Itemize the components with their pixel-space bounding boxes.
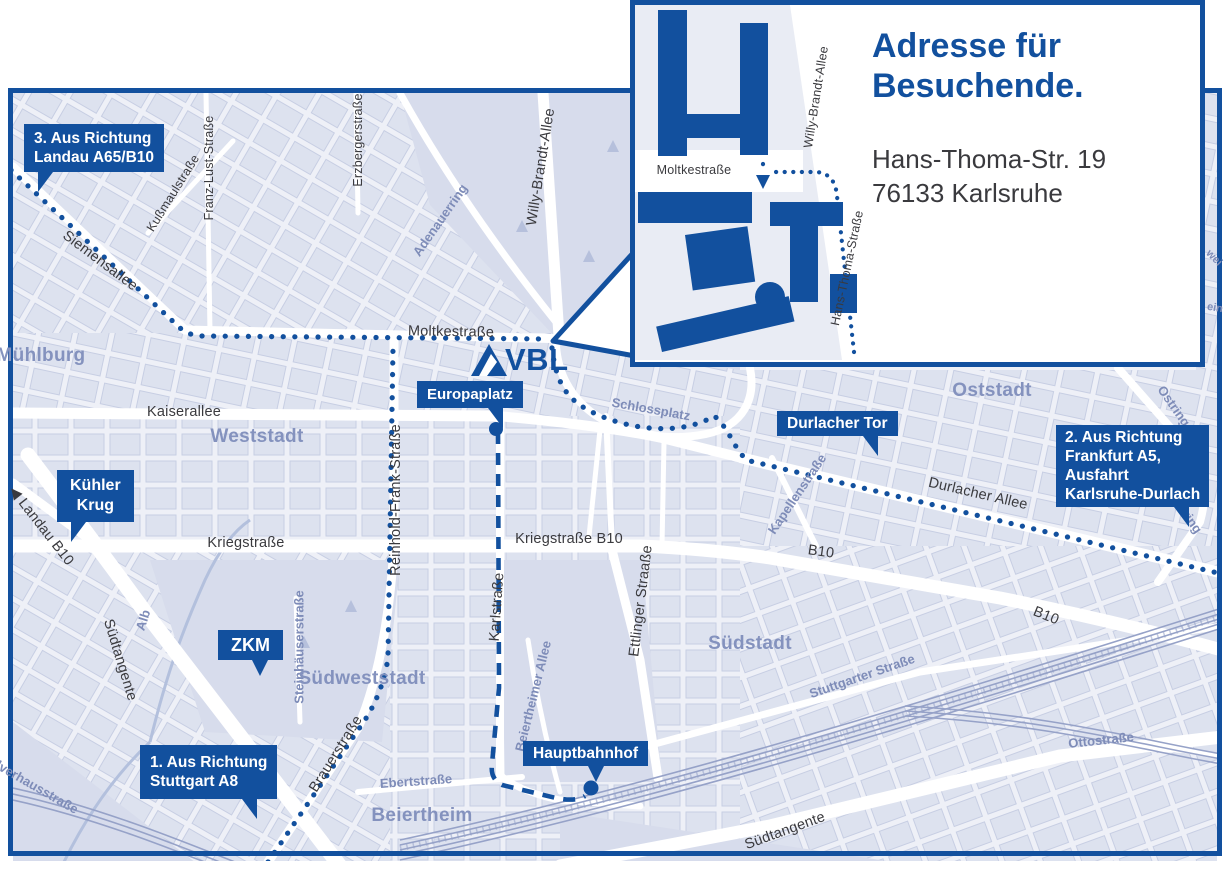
address-line2: 76133 Karlsruhe xyxy=(872,176,1106,210)
vbl-logo-text: VBL xyxy=(505,342,569,378)
callout-durlacher-tor: Durlacher Tor xyxy=(777,411,898,436)
callout-kuehler-krug: Kühler Krug xyxy=(57,470,134,522)
callout-route3-landau: 3. Aus Richtung Landau A65/B10 xyxy=(24,124,164,172)
callout-europaplatz: Europaplatz xyxy=(417,381,523,408)
inset-address: Hans-Thoma-Str. 19 76133 Karlsruhe xyxy=(872,142,1106,210)
callout-zkm: ZKM xyxy=(218,630,283,660)
callout-route2-frankfurt: 2. Aus Richtung Frankfurt A5, Ausfahrt K… xyxy=(1056,425,1209,507)
vbl-directions-map: Adresse für Besuchende. Hans-Thoma-Str. … xyxy=(0,0,1230,874)
inset-heading-line2: Besuchende. xyxy=(872,66,1084,106)
address-line1: Hans-Thoma-Str. 19 xyxy=(872,142,1106,176)
callout-route1-stuttgart: 1. Aus Richtung Stuttgart A8 xyxy=(140,745,277,799)
hauptbahnhof-marker-dot xyxy=(584,781,599,796)
callout-hauptbahnhof: Hauptbahnhof xyxy=(523,741,648,766)
inset-heading: Adresse für Besuchende. xyxy=(872,26,1084,106)
inset-heading-line1: Adresse für xyxy=(872,26,1084,66)
